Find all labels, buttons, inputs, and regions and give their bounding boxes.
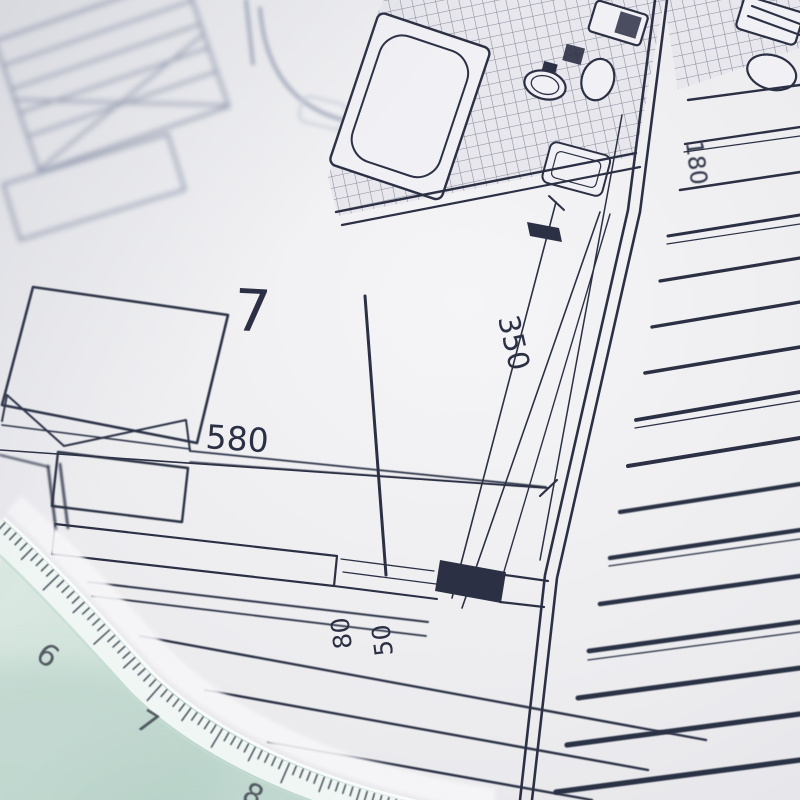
- door-swing: [246, 0, 348, 131]
- solid-wall-segment: [435, 560, 506, 603]
- blueprint-photo: 7 580 350 80 50 180: [0, 0, 800, 800]
- dimension-80-label: 80: [325, 616, 358, 651]
- window-symbol: [341, 559, 434, 571]
- dimensions: 7 580 350 80 50 180: [0, 140, 711, 658]
- staircase: [0, 0, 229, 240]
- floor-plan-drawing: 7 580 350 80 50 180: [0, 0, 800, 800]
- room-walls: [0, 202, 610, 608]
- stair-landing: [3, 134, 184, 240]
- door-arc: [260, 8, 347, 121]
- room-number: 7: [232, 276, 272, 346]
- dimension-line-580: [0, 450, 548, 488]
- dimension-350-label: 350: [491, 312, 537, 374]
- furniture-block: [52, 452, 188, 522]
- wall-pocket: [527, 222, 562, 242]
- dimension-580-label: 580: [204, 417, 270, 460]
- ruler: 6 7 8: [0, 504, 494, 800]
- dimension-180-label: 180: [680, 140, 711, 187]
- wardrobe: [2, 287, 546, 522]
- partition-line: [365, 296, 386, 575]
- dimension-50-label: 50: [366, 623, 399, 658]
